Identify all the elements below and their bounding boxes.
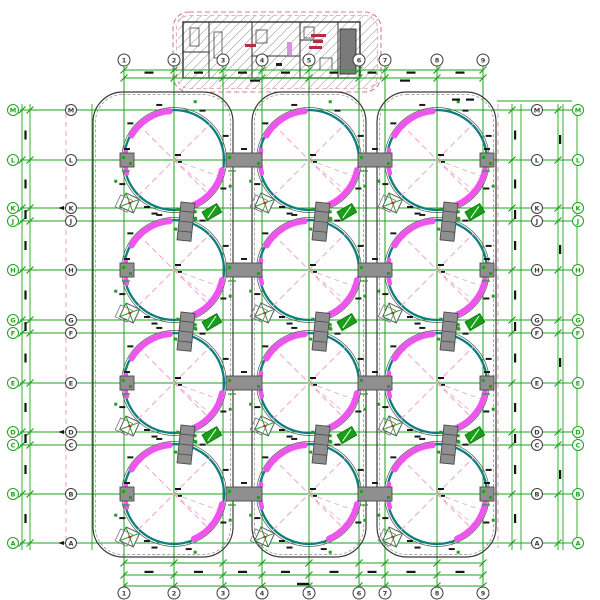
pier-text-mark [484,371,490,373]
stack-green-dot [194,327,197,330]
tank-center-mark [438,377,444,379]
axis-bubble-label: L [535,157,539,165]
tank-highlight-arc [267,445,305,469]
tank-center-mark [441,495,445,497]
pier-text-mark [241,371,247,373]
annotation-mark [262,345,268,347]
axis-bubble-label: D [575,429,581,437]
annotation-mark [223,358,229,360]
axis-bubble-label: 2 [172,57,177,65]
annotation-mark-green [249,290,252,293]
pier-text-mark [484,482,490,484]
pier-green-dot [257,385,260,388]
tank-circles [114,100,494,554]
axis-bubble-label: D [68,429,74,437]
tank-radial-line [437,383,474,414]
annotation-mark [382,406,388,408]
tank-center-mark [175,154,181,156]
tank-highlight-arc [457,393,485,428]
axis-bubble-label: F [11,330,15,338]
pier-green-dot [122,379,125,382]
annotation-mark-green [492,185,495,188]
annotation-mark [119,406,125,408]
pad-text-mark [407,206,413,208]
hatch-line [178,15,247,84]
axis-bubble-label: 2 [172,590,177,598]
annotation-mark [291,214,297,216]
dim-number-mark [24,131,26,140]
dim-number-mark [24,291,26,300]
dim-number-mark [194,571,203,573]
annotation-mark [119,183,125,185]
pad-text-mark [144,206,150,208]
pier-text-mark [484,148,490,150]
annotation-mark [156,104,162,106]
equipment-pad [378,191,402,214]
axis-bubble-label: 6 [357,57,362,65]
dim-number-mark [24,354,26,363]
equipment-pad [378,414,402,437]
annotation-mark [486,358,492,360]
axis-bubble-label: J [576,218,579,226]
annotation-mark [291,104,297,106]
pad-text-mark [407,316,413,318]
pier-block [358,153,392,167]
annotation-mark [287,436,293,438]
stack-green-dot [176,208,179,211]
tank-center-mark [175,377,181,379]
axis-bubble-label: M [534,107,540,115]
dim-number-mark [456,72,465,74]
annotation-mark [358,245,364,247]
dim-number-mark [368,571,377,573]
dim-number-mark [238,571,247,573]
green-skid [465,427,485,444]
dim-number-mark [559,358,561,367]
axis-bubble-label: B [535,491,540,499]
pier-block [226,376,262,390]
pier-text-mark [372,148,378,150]
annotation-mark [390,122,396,124]
annotation-mark-green [114,180,117,183]
green-skid [202,314,222,331]
dim-number-mark [24,434,26,443]
dim-number-mark [559,245,561,254]
annotation-mark-green [329,100,332,103]
annotation-mark [291,438,297,440]
axis-bubble-label: G [534,317,539,325]
axis-bubble-label: 3 [221,590,226,598]
axis-bubble-label: 9 [481,57,486,65]
axis-bubble-label: F [535,330,539,338]
annotation-mark-green [377,180,380,183]
axis-bubble-label: H [575,267,580,275]
cad-drawing: 112233445566778899MMMMLLLLKKKKJJJJHHHHGG… [0,0,600,600]
annotation-mark [355,298,361,300]
pier-text-mark [124,371,130,373]
tank-center-mark [310,264,316,266]
pier-green-dot [387,496,390,499]
dim-number-mark [250,80,260,82]
green-skid [337,314,357,331]
tank-radial-line [309,383,346,414]
axis-bubble-label: 1 [122,590,127,598]
stack-green-dot [311,208,314,211]
annotation-mark-green [492,408,495,411]
axis-bubble-label: L [11,157,15,165]
dim-number-mark [281,571,290,573]
annotation-mark [483,522,489,524]
pad-text-mark [407,540,413,542]
axis-bubble-label: B [69,491,74,499]
annotation-mark [415,323,421,325]
stack-green-dot [439,208,442,211]
annotation-mark [156,327,162,329]
annotation-mark-green [249,180,252,183]
annotation-mark [291,327,297,329]
annotation-mark [254,183,260,185]
dim-number-mark [407,72,416,74]
cad-canvas: 112233445566778899MMMMLLLLKKKKJJJJHHHHGG… [0,0,600,600]
tank-highlight-arc [395,445,433,469]
axis-bubble-label: H [10,267,15,275]
green-skid [465,314,485,331]
axis-bubbles: 112233445566778899MMMMLLLLKKKKJJJJHHHHGG… [8,54,584,599]
dim-number-mark [514,180,516,189]
pier-block [358,263,392,277]
annotation-mark [483,411,489,413]
annotation-mark [200,333,206,335]
pier-green-dot [360,490,363,493]
annotation-mark [355,522,361,524]
dim-number-mark [514,514,516,523]
dim-number-mark [514,291,516,300]
tank-highlight-arc [267,334,305,358]
green-skid [202,204,222,221]
axis-bubble-label: 5 [307,590,312,598]
pier-green-dot [122,156,125,159]
dim-number-mark [514,210,516,219]
pad-text-mark [144,540,150,542]
tank-highlight-arc [457,504,485,539]
equipment-pad [250,301,274,324]
annotation-mark-green [377,290,380,293]
pier-text-mark [241,258,247,260]
axis-bubble-label: H [68,267,73,275]
axis-bubble-label: 9 [481,590,486,598]
axis-bubble-label: 8 [435,590,440,598]
tank-highlight-arc [395,334,433,358]
annotation-mark [119,293,125,295]
pier-green-dot [129,496,132,499]
annotation-mark [287,323,293,325]
annotation-mark [335,333,341,335]
annotation-mark-green [249,403,252,406]
annotation-mark [262,232,268,234]
annotation-mark-green [249,514,252,517]
axis-bubble-label: A [68,540,73,548]
annotation-mark [200,444,206,446]
axis-bubble-label: J [11,218,14,226]
tank-center-mark [438,488,444,490]
green-skid [465,204,485,221]
pier-block [226,263,262,277]
annotation-mark [262,456,268,458]
annotation-mark [486,245,492,247]
tank-highlight-arc [457,170,485,205]
axis-bubble-label: H [534,267,539,275]
pier-green-dot [489,162,492,165]
tank-center-mark [175,488,181,490]
pier-block [226,153,262,167]
leader-arrow [58,430,64,434]
annotation-mark [390,232,396,234]
dim-number-mark [514,465,516,474]
axis-bubble-label: A [10,540,15,548]
pad-text-mark [279,429,285,431]
annotation-mark [449,548,455,550]
annotation-mark [463,110,469,112]
leader-arrow [58,541,64,545]
building-red-label-mark [313,40,323,43]
annotation-mark [463,220,469,222]
inter-row-pier-stack [173,312,199,352]
stack-green-dot [457,217,460,220]
annotation-mark [223,135,229,137]
dim-number-mark [194,72,203,74]
tank-center-mark [441,161,445,163]
annotation-mark [355,411,361,413]
dim-number-mark [24,180,26,189]
pier-block [226,487,262,501]
axis-bubble-label: 1 [122,57,127,65]
axis-bubble-label: A [534,540,539,548]
annotation-mark-green [229,408,232,411]
annotation-mark [127,122,133,124]
stack-green-dot [176,318,179,321]
annotation-mark-green [364,185,367,188]
tank-center-mark [441,384,445,386]
axis-bubble-label: M [10,107,16,115]
pier-green-dot [228,266,231,269]
annotation-mark [419,327,425,329]
annotation-mark-green [364,408,367,411]
stack-green-dot [437,227,440,230]
dim-number-mark [514,241,516,250]
axis-bubble-label: F [576,330,580,338]
tank-highlight-arc [267,111,305,135]
pier-green-dot [129,162,132,165]
pier-green-dot [228,156,231,159]
annotation-mark-green [114,403,117,406]
tank-highlight-arc [132,334,170,358]
axis-bubble-label: 7 [383,57,388,65]
hatch-line [178,15,238,75]
dim-number-mark [330,571,339,573]
tank-highlight-arc [395,111,433,135]
stack-green-dot [194,217,197,220]
dim-number-mark [514,131,516,140]
building-red-label-mark [245,44,256,47]
pier-green-dot [257,272,260,275]
tank-radial-line [437,270,474,301]
tank-center-mark [310,154,316,156]
tank-highlight-arc [194,393,222,428]
tank-center-mark [178,384,182,386]
pier-text-mark [372,258,378,260]
hatch-line [362,73,378,89]
dim-number-mark [514,434,516,443]
annotation-mark [156,214,162,216]
dim-number-mark [24,241,26,250]
dim-number-mark [238,72,247,74]
green-skid [337,204,357,221]
tank-center-mark [313,495,317,497]
equipment-pad [115,525,139,548]
dim-number-mark [330,72,339,74]
axis-bubble-label: B [11,491,16,499]
tank-radial-line [174,383,211,414]
annotation-mark-green [194,551,197,554]
dim-number-mark [452,99,460,101]
stack-green-dot [439,318,442,321]
tank-highlight-arc [329,280,357,315]
axis-bubble-label: M [68,107,74,115]
stack-green-dot [329,327,332,330]
tank-center-mark [310,377,316,379]
equipment-pad [250,191,274,214]
pier-green-dot [122,490,125,493]
dim-number-mark [559,470,561,479]
tank-highlight-arc [457,280,485,315]
annotation-mark [415,547,421,549]
stack-green-dot [437,450,440,453]
pier-green-dot [360,156,363,159]
annotation-mark-green [229,185,232,188]
tank-radial-line [437,494,474,525]
annotation-mark [463,444,469,446]
annotation-mark [390,345,396,347]
pier-text-mark [124,258,130,260]
pier-text-mark [241,148,247,150]
dim-number-mark [24,403,26,412]
annotation-mark [220,188,226,190]
tank-radial-line [174,160,211,191]
axis-bubble-label: M [575,107,581,115]
tank-highlight-arc [329,504,357,539]
pier-green-dot [482,156,485,159]
axis-bubble-label: D [10,429,16,437]
dim-number-mark [466,99,474,101]
stack-green-dot [311,318,314,321]
pad-text-mark [144,429,150,431]
inter-row-pier-stack [308,312,334,352]
stack-green-dot [457,327,460,330]
annotation-mark [382,183,388,185]
tank-radial-line [309,494,346,525]
annotation-mark [127,232,133,234]
annotation-mark [200,110,206,112]
building-equipment-block [340,29,356,74]
annotation-mark [127,456,133,458]
equipment-pad [378,301,402,324]
pier-text-mark [124,148,130,150]
equipment-pad [115,301,139,324]
axis-bubble-label: D [534,429,540,437]
pier-green-dot [387,162,390,165]
tank-highlight-arc [267,221,305,245]
annotation-mark [262,122,268,124]
axis-bubble-label: C [576,442,581,450]
annotation-mark [152,323,158,325]
tank-radial-line [437,160,474,191]
annotation-mark [419,438,425,440]
annotation-mark-green [377,514,380,517]
dim-number-mark [24,465,26,474]
annotation-mark-green [229,519,232,522]
dim-number-mark [514,403,516,412]
pier-green-dot [257,496,260,499]
stack-green-dot [174,337,177,340]
tank-center-mark [178,271,182,273]
tank-center-mark [438,264,444,266]
pad-text-mark [407,429,413,431]
pier-text-mark [372,482,378,484]
pier-block [358,376,392,390]
axis-bubble-label: 4 [260,590,265,598]
annotation-mark [200,220,206,222]
stack-green-dot [309,450,312,453]
stack-green-dot [176,431,179,434]
tank-highlight-arc [194,504,222,539]
axis-bubble-label: L [69,157,73,165]
annotation-mark [382,517,388,519]
leader-arrow [58,206,64,210]
equipment-pad [378,525,402,548]
pad-text-mark [279,316,285,318]
annotation-mark [358,469,364,471]
tank-highlight-arc [194,280,222,315]
dim-number-mark [24,210,26,219]
pier-text-mark [372,371,378,373]
annotation-mark [419,104,425,106]
pump-house-building [173,12,381,92]
tank-highlight-arc [132,111,170,135]
pier-green-dot [228,379,231,382]
tank-highlight-arc [132,221,170,245]
dim-number-mark [514,322,516,331]
annotation-mark [486,469,492,471]
annotation-mark [358,358,364,360]
pier-green-dot [489,272,492,275]
tank-radial-line [174,270,211,301]
annotation-mark [335,220,341,222]
annotation-mark-green [364,519,367,522]
annotation-mark [186,548,192,550]
building-magenta-mark [287,42,292,55]
axis-bubble-label: B [576,491,581,499]
pier-green-dot [360,379,363,382]
pad-text-mark [144,316,150,318]
dim-total-mark [297,583,309,585]
tank-center-mark [178,161,182,163]
pier-green-dot [129,385,132,388]
pier-green-dot [360,266,363,269]
pier-text-mark [241,482,247,484]
dim-number-mark [400,80,410,82]
axis-bubble-label: G [68,317,73,325]
axis-bubble-label: C [69,442,74,450]
